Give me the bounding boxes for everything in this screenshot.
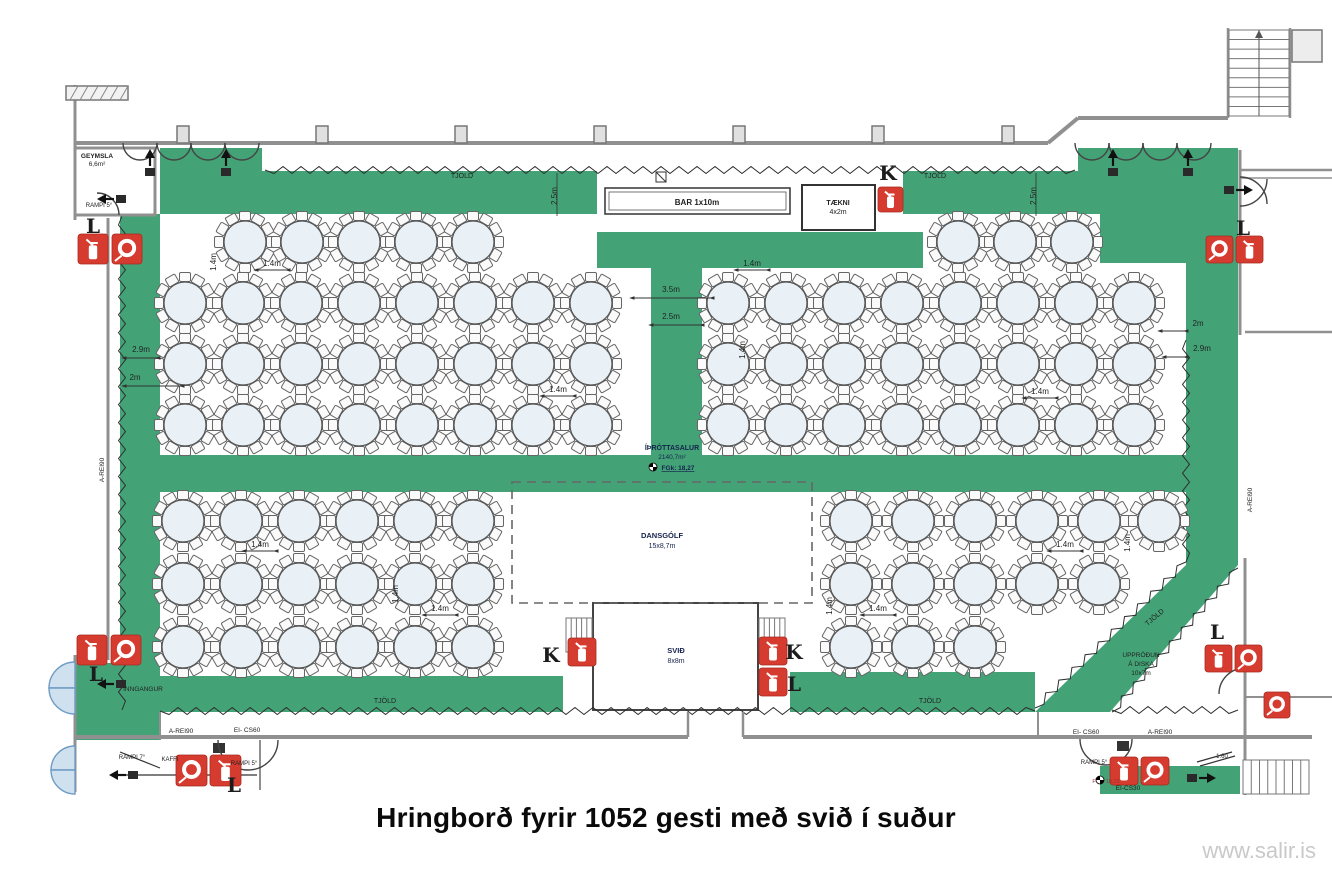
chair-seat (297, 264, 308, 273)
chair (883, 516, 892, 527)
chair (997, 516, 1006, 527)
chair-seat (970, 617, 981, 626)
chair-seat (872, 420, 881, 431)
table-top (336, 626, 378, 668)
chair-seat (329, 359, 338, 370)
round-table (211, 617, 272, 678)
chair (238, 447, 249, 456)
chair (1042, 237, 1051, 248)
chair (1129, 273, 1140, 282)
chair (1071, 447, 1082, 456)
chair (846, 543, 857, 552)
chair-seat (1156, 298, 1165, 309)
chair (970, 617, 981, 626)
chair (354, 334, 365, 343)
hose-reel-icon (1206, 236, 1233, 263)
table-top (939, 404, 981, 446)
table-top (1055, 282, 1097, 324)
table-top (278, 626, 320, 668)
chair (468, 606, 479, 615)
chair-seat (945, 579, 954, 590)
chair (1129, 447, 1140, 456)
plan-label: 4x2m (829, 209, 846, 216)
chair-seat (238, 325, 249, 334)
plan-label: EI-CS30 (1116, 785, 1141, 792)
extinguisher-icon (759, 637, 787, 665)
chair (297, 212, 308, 221)
chair-seat (296, 395, 307, 404)
chair (236, 543, 247, 552)
chair-seat (970, 491, 981, 500)
chair-seat (269, 642, 278, 653)
round-table (945, 617, 1006, 678)
wall-top-jog (1048, 118, 1078, 143)
dimension-label: 1.4m (738, 341, 747, 359)
chair (1067, 212, 1078, 221)
table-top (1055, 343, 1097, 385)
table-top (892, 626, 934, 668)
chair (495, 642, 504, 653)
extinguisher-body (88, 646, 96, 660)
chair (495, 579, 504, 590)
chair-seat (468, 606, 479, 615)
round-table (271, 395, 332, 456)
chair-seat (930, 359, 939, 370)
chair (1069, 516, 1078, 527)
round-table (329, 395, 390, 456)
chair-seat (1094, 237, 1103, 248)
chair-seat (445, 359, 454, 370)
table-top (954, 563, 996, 605)
chair-seat (296, 447, 307, 456)
chair-seat (953, 212, 964, 221)
chair (1046, 359, 1055, 370)
chair-seat (412, 273, 423, 282)
chair-seat (495, 642, 504, 653)
watermark: www.salir.is (1202, 838, 1316, 864)
chair (327, 579, 336, 590)
chair (211, 579, 220, 590)
chair-seat (296, 325, 307, 334)
chair (410, 617, 421, 626)
chair-seat (238, 447, 249, 456)
chair (1046, 298, 1055, 309)
table-top (512, 282, 554, 324)
chair-seat (1013, 325, 1024, 334)
chair-seat (412, 325, 423, 334)
chair-seat (294, 554, 305, 563)
chair-seat (955, 386, 966, 395)
round-table (1046, 273, 1107, 334)
chair-seat (470, 325, 481, 334)
chair-seat (756, 420, 765, 431)
plan-label: TJÖLD (374, 697, 396, 705)
chair (970, 554, 981, 563)
chair-seat (846, 491, 857, 500)
chair (846, 617, 857, 626)
chair (935, 516, 944, 527)
chair-seat (955, 325, 966, 334)
chair (327, 642, 336, 653)
chair-seat (528, 334, 539, 343)
chair (781, 386, 792, 395)
chair-seat (410, 606, 421, 615)
table-top (396, 404, 438, 446)
chair (930, 420, 939, 431)
chair-seat (821, 516, 830, 527)
chair-seat (468, 669, 479, 678)
chair-seat (352, 491, 363, 500)
chair-seat (213, 420, 222, 431)
chair-seat (1094, 606, 1105, 615)
round-table (814, 334, 875, 395)
round-table (1129, 491, 1190, 552)
table-top (1138, 500, 1180, 542)
chair-seat (495, 516, 504, 527)
chair-seat (561, 420, 570, 431)
round-table (561, 273, 622, 334)
chair (908, 606, 919, 615)
chair (970, 543, 981, 552)
table-top (452, 563, 494, 605)
chair-seat (935, 642, 944, 653)
chair-seat (945, 516, 954, 527)
round-table (756, 334, 817, 395)
chair (1013, 395, 1024, 404)
chair (468, 491, 479, 500)
round-table (872, 334, 933, 395)
table-top (954, 500, 996, 542)
chair (1046, 420, 1055, 431)
round-table (883, 554, 944, 615)
chair-seat (443, 237, 452, 248)
chair (839, 386, 850, 395)
table-top (338, 343, 380, 385)
chair-seat (238, 395, 249, 404)
chair (945, 579, 954, 590)
chair-seat (1094, 543, 1105, 552)
chair-seat (178, 617, 189, 626)
table-top (164, 404, 206, 446)
plan-label: BAR 1x10m (675, 198, 719, 207)
chair-seat (352, 543, 363, 552)
chair (1071, 273, 1082, 282)
chair-seat (352, 554, 363, 563)
table-top (570, 404, 612, 446)
chair-seat (327, 579, 336, 590)
chair (821, 579, 830, 590)
hose-reel-icon (1264, 692, 1290, 718)
plan-label: TJÖLD (924, 172, 946, 180)
chair-seat (897, 334, 908, 343)
table-top (1055, 404, 1097, 446)
chair-seat (1129, 516, 1138, 527)
chair (839, 395, 850, 404)
chair-seat (445, 420, 454, 431)
chair (781, 325, 792, 334)
chair-seat (613, 359, 622, 370)
chair (1010, 212, 1021, 221)
chair-seat (781, 273, 792, 282)
chair (410, 543, 421, 552)
plan-label: FGk: 18,27 (662, 465, 695, 472)
chair (586, 334, 597, 343)
table-top (1113, 282, 1155, 324)
table-top (1113, 343, 1155, 385)
chair (1013, 447, 1024, 456)
chair (528, 447, 539, 456)
table-top (823, 404, 865, 446)
table-top (765, 343, 807, 385)
chair (271, 298, 280, 309)
hydrant-letter-L: L (227, 773, 241, 797)
chair (561, 359, 570, 370)
chair (296, 273, 307, 282)
chair (1156, 359, 1165, 370)
chair-seat (354, 395, 365, 404)
chair-seat (970, 606, 981, 615)
chair (269, 516, 278, 527)
round-table (1069, 491, 1130, 552)
chair (908, 491, 919, 500)
plan-label: EI- CS60 (234, 727, 261, 734)
chair (329, 298, 338, 309)
blue-door (51, 770, 75, 794)
dimension-label: 2.5m (662, 312, 680, 321)
chair (970, 606, 981, 615)
round-table (443, 554, 504, 615)
chair-seat (387, 298, 396, 309)
chair-seat (1013, 273, 1024, 282)
chair (296, 334, 307, 343)
dimension-label: 1.4m (549, 385, 567, 394)
dimension-label: 2m (129, 373, 140, 382)
chair-seat (528, 386, 539, 395)
chair-seat (908, 617, 919, 626)
chair (781, 395, 792, 404)
chair-seat (238, 273, 249, 282)
exit-sign (1224, 186, 1234, 194)
dimension-label: 2.5m (1029, 187, 1038, 205)
chair-seat (468, 617, 479, 626)
chair-seat (872, 359, 881, 370)
table-top (1078, 500, 1120, 542)
chair (930, 359, 939, 370)
chair-seat (814, 420, 823, 431)
chair-seat (271, 420, 280, 431)
chair-seat (988, 420, 997, 431)
chair-seat (846, 606, 857, 615)
round-table (698, 334, 759, 395)
chair-seat (586, 334, 597, 343)
arrow-head (1244, 185, 1253, 195)
chair-seat (1129, 447, 1140, 456)
round-table (271, 273, 332, 334)
chair-seat (883, 516, 892, 527)
chair (1154, 543, 1165, 552)
chair (410, 669, 421, 678)
chair (586, 325, 597, 334)
chair-seat (178, 543, 189, 552)
table-top (338, 221, 380, 263)
dimension-label: 2.9m (1193, 344, 1211, 353)
chair (354, 212, 365, 221)
chair (412, 386, 423, 395)
chair (470, 273, 481, 282)
round-table (698, 273, 759, 334)
chair-seat (445, 298, 454, 309)
chair-seat (698, 298, 707, 309)
table-top (570, 343, 612, 385)
plan-label: RAMPI 5° (1081, 760, 1108, 766)
extinguisher-body (1246, 246, 1254, 258)
table-top (396, 282, 438, 324)
plan-label: TÆKNI (826, 200, 849, 207)
chair (908, 543, 919, 552)
chair (296, 395, 307, 404)
table-top (881, 404, 923, 446)
chair-seat (211, 579, 220, 590)
chair-seat (897, 395, 908, 404)
plan-label: A-REI90 (1247, 487, 1254, 512)
chair (839, 334, 850, 343)
table-top (220, 500, 262, 542)
extinguisher-body (578, 649, 586, 662)
table-top (707, 282, 749, 324)
chair (872, 359, 881, 370)
chair (586, 273, 597, 282)
chair-seat (296, 273, 307, 282)
extinguisher-body (887, 197, 894, 209)
chair-seat (970, 669, 981, 678)
chair-seat (180, 334, 191, 343)
chair-seat (846, 669, 857, 678)
chair-seat (1071, 386, 1082, 395)
chair-seat (153, 642, 162, 653)
chair-seat (294, 617, 305, 626)
chair (180, 325, 191, 334)
dimension-label: 1.4m (1031, 387, 1049, 396)
chair (723, 325, 734, 334)
chair-seat (1121, 579, 1130, 590)
chair-seat (354, 334, 365, 343)
chair (1032, 491, 1043, 500)
chair (153, 516, 162, 527)
chair-seat (872, 298, 881, 309)
chair (495, 516, 504, 527)
chair-seat (495, 237, 504, 248)
chair (872, 298, 881, 309)
chair-seat (997, 642, 1006, 653)
round-table (155, 273, 216, 334)
plan-label: A-REI90 (99, 457, 106, 482)
chair (821, 642, 830, 653)
chair (781, 273, 792, 282)
round-table (386, 212, 447, 273)
chair-seat (236, 491, 247, 500)
hose-reel-icon (1141, 757, 1169, 785)
chair-seat (1059, 516, 1068, 527)
chair-seat (294, 543, 305, 552)
chair-seat (354, 273, 365, 282)
chair-seat (1007, 516, 1016, 527)
chair (1013, 273, 1024, 282)
round-table (155, 334, 216, 395)
chair (1032, 606, 1043, 615)
chair (1071, 334, 1082, 343)
chair (354, 386, 365, 395)
hydrant-letter-L: L (1236, 216, 1250, 240)
level-marker-q2 (1096, 776, 1100, 780)
table-top (830, 626, 872, 668)
table-top (395, 221, 437, 263)
chair-seat (354, 386, 365, 395)
chair-seat (970, 543, 981, 552)
chair (385, 642, 394, 653)
chair (178, 606, 189, 615)
chair (329, 359, 338, 370)
chair-seat (503, 420, 512, 431)
table-top (338, 404, 380, 446)
chair-seat (839, 325, 850, 334)
chair (988, 420, 997, 431)
chair-seat (1067, 212, 1078, 221)
round-table (945, 554, 1006, 615)
table-top (162, 500, 204, 542)
exit-sign (128, 771, 138, 779)
table-top (394, 563, 436, 605)
chair-seat (296, 334, 307, 343)
hose-reel-icon (1235, 645, 1262, 672)
chair (503, 359, 512, 370)
chair (327, 516, 336, 527)
chair-seat (443, 579, 452, 590)
chair (846, 669, 857, 678)
round-table (443, 491, 504, 552)
column-2 (316, 126, 328, 143)
chair (953, 264, 964, 273)
chair-seat (781, 447, 792, 456)
chair-seat (756, 298, 765, 309)
hydrant-letter-K: K (879, 161, 897, 185)
round-table (329, 273, 390, 334)
table-top (280, 282, 322, 324)
chair-seat (411, 264, 422, 273)
chair (178, 543, 189, 552)
round-table (561, 334, 622, 395)
chair (756, 359, 765, 370)
chair-seat (561, 298, 570, 309)
table-top (394, 500, 436, 542)
round-table (153, 617, 214, 678)
chair-seat (1129, 273, 1140, 282)
chair (271, 359, 280, 370)
chair (935, 579, 944, 590)
round-table (928, 212, 989, 273)
round-table (1104, 334, 1165, 395)
dimension-label: 1.4m (869, 604, 887, 613)
chair-seat (468, 212, 479, 221)
chair-seat (412, 447, 423, 456)
round-table (821, 491, 882, 552)
chair (756, 298, 765, 309)
blue-door (49, 662, 75, 688)
chair (528, 325, 539, 334)
chair (908, 554, 919, 563)
chair (1104, 298, 1113, 309)
chair (211, 516, 220, 527)
dimension-label: 2m (1192, 319, 1203, 328)
